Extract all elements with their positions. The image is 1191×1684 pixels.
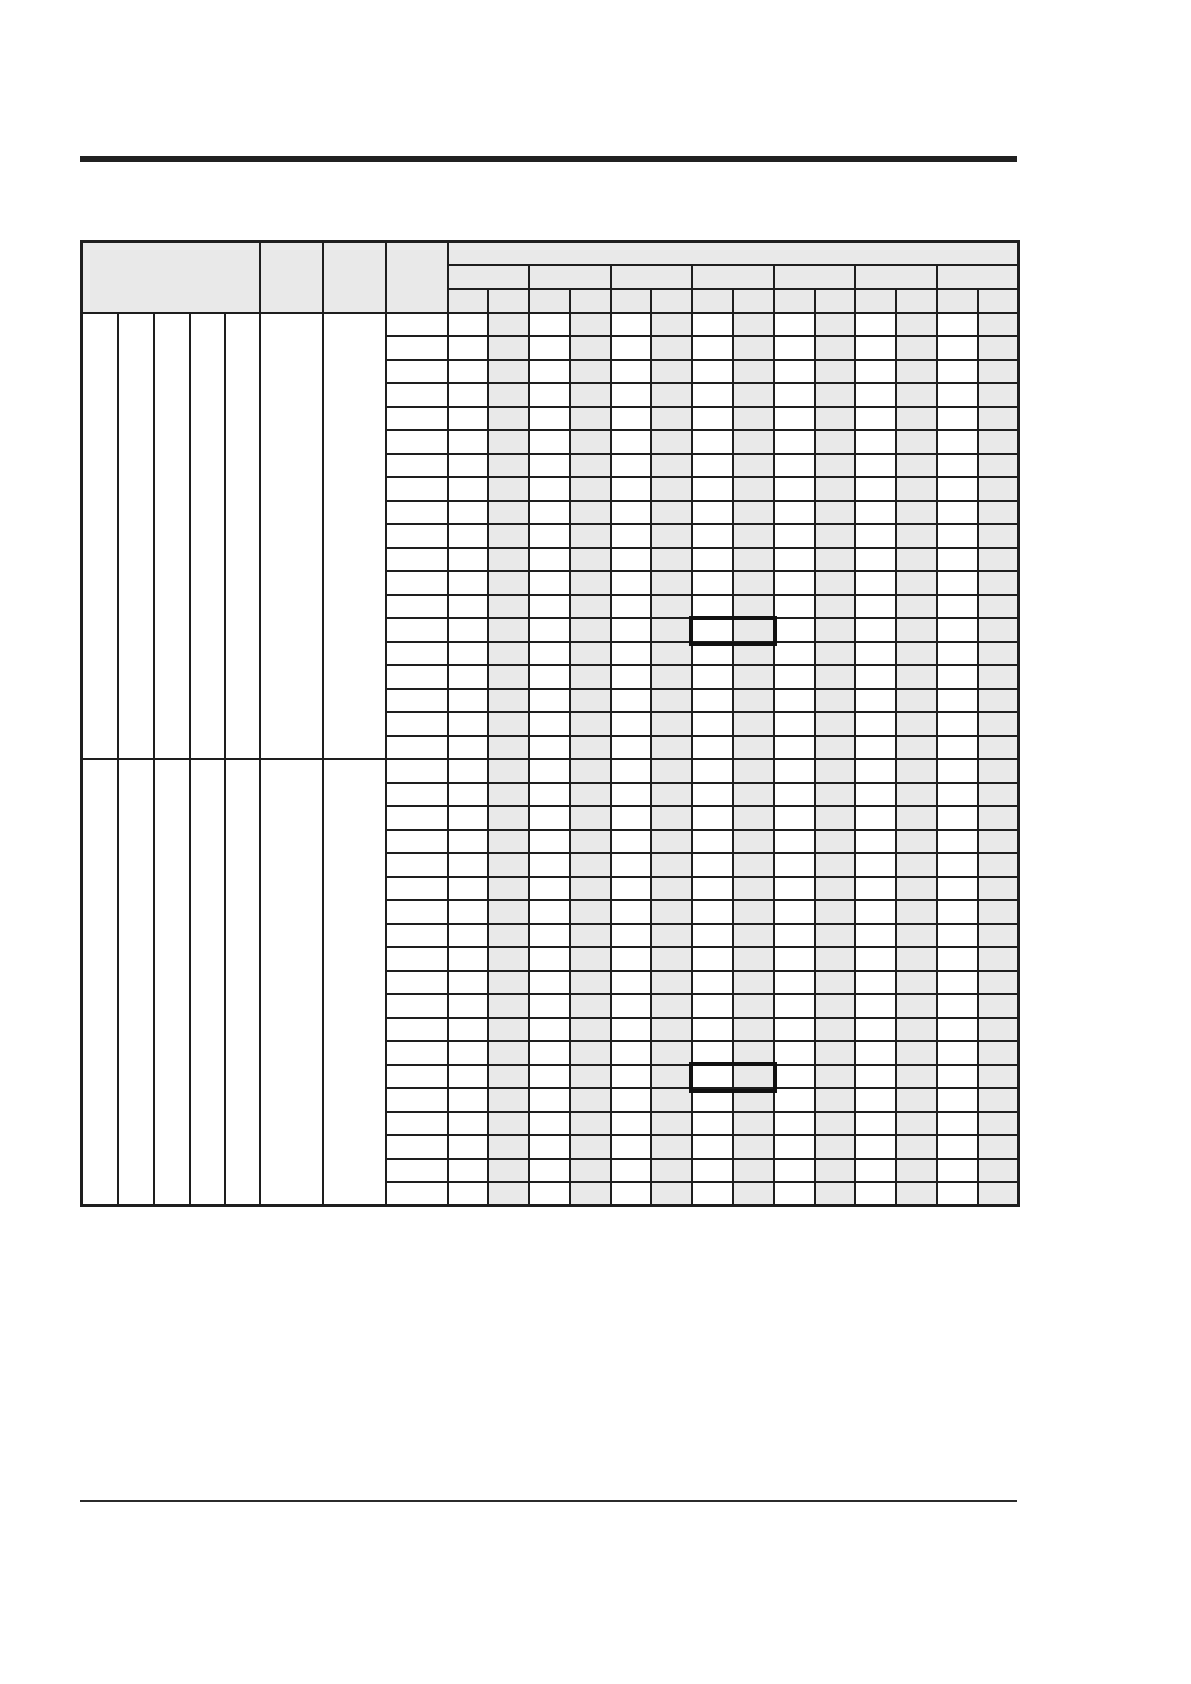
body-cell: [488, 1041, 529, 1065]
body-cell: [855, 900, 896, 924]
body-cell: [651, 1135, 692, 1159]
body-cell: [692, 360, 733, 384]
body-cell: [815, 900, 856, 924]
body-cell: [855, 1065, 896, 1089]
body-cell: [896, 806, 937, 830]
body-cell: [978, 830, 1019, 854]
body-cell: [651, 336, 692, 360]
body-cell: [448, 571, 489, 595]
stub-cell: [386, 924, 448, 948]
body-cell: [855, 689, 896, 713]
body-cell: [611, 571, 652, 595]
body-cell: [733, 1159, 774, 1183]
stub-cell: [386, 477, 448, 501]
body-cell: [896, 783, 937, 807]
stub-cell: [386, 407, 448, 431]
body-cell: [692, 1159, 733, 1183]
body-cell: [529, 1088, 570, 1112]
body-cell: [692, 407, 733, 431]
body-cell: [978, 407, 1019, 431]
body-cell: [815, 759, 856, 783]
body-cell: [978, 524, 1019, 548]
body-cell: [448, 477, 489, 501]
body-cell: [815, 853, 856, 877]
body-cell: [529, 806, 570, 830]
body-cell: [692, 1135, 733, 1159]
body-cell: [488, 1088, 529, 1112]
body-cell: [570, 736, 611, 760]
body-cell: [570, 1112, 611, 1136]
body-cell: [896, 830, 937, 854]
body-cell: [448, 407, 489, 431]
body-cell: [815, 689, 856, 713]
body-cell: [937, 759, 978, 783]
body-cell: [815, 1065, 856, 1089]
body-cell: [488, 1018, 529, 1042]
body-cell: [651, 430, 692, 454]
body-cell: [611, 783, 652, 807]
body-cell: [896, 618, 937, 642]
body-cell: [855, 994, 896, 1018]
header-subcol-14: [978, 289, 1019, 313]
header-subcol-7: [692, 289, 733, 313]
body-cell: [855, 313, 896, 337]
body-cell: [815, 454, 856, 478]
body-cell: [937, 1112, 978, 1136]
body-cell: [774, 1088, 815, 1112]
stub-cell: [386, 313, 448, 337]
body-cell: [692, 947, 733, 971]
body-cell: [733, 689, 774, 713]
body-cell: [488, 548, 529, 572]
body-cell: [774, 759, 815, 783]
body-cell: [611, 1135, 652, 1159]
body-cell: [733, 971, 774, 995]
body-cell: [488, 947, 529, 971]
body-cell: [733, 759, 774, 783]
body-cell: [815, 383, 856, 407]
body-cell: [529, 853, 570, 877]
body-cell: [651, 548, 692, 572]
body-cell: [448, 548, 489, 572]
stub-cell: [386, 783, 448, 807]
body-cell: [896, 1159, 937, 1183]
body-cell: [488, 1065, 529, 1089]
body-cell: [570, 430, 611, 454]
body-cell: [815, 430, 856, 454]
body-cell: [937, 853, 978, 877]
body-cell: [733, 665, 774, 689]
body-cell: [855, 548, 896, 572]
body-cell: [488, 383, 529, 407]
body-cell: [488, 1182, 529, 1206]
header-col-h: [386, 242, 448, 313]
body-cell: [937, 736, 978, 760]
stub-cell: [386, 501, 448, 525]
stub-cell: [386, 548, 448, 572]
body-cell: [855, 783, 896, 807]
body-cell: [611, 806, 652, 830]
body-cell: [733, 736, 774, 760]
body-cell: [774, 1159, 815, 1183]
body-cell: [570, 1135, 611, 1159]
body-cell: [774, 947, 815, 971]
body-cell: [448, 806, 489, 830]
body-cell: [488, 759, 529, 783]
body-cell: [774, 1041, 815, 1065]
body-cell: [488, 336, 529, 360]
body-cell: [937, 689, 978, 713]
body-cell: [896, 595, 937, 619]
body-cell: [488, 618, 529, 642]
header-subcol-4: [570, 289, 611, 313]
stub-cell: [386, 595, 448, 619]
body-cell: [448, 1088, 489, 1112]
body-cell: [733, 336, 774, 360]
body-cell: [937, 642, 978, 666]
body-cell: [774, 806, 815, 830]
body-cell: [529, 1041, 570, 1065]
body-cell: [978, 665, 1019, 689]
body-cell: [774, 1135, 815, 1159]
body-cell: [978, 712, 1019, 736]
body-cell: [611, 971, 652, 995]
body-cell: [855, 1088, 896, 1112]
body-cell: [896, 454, 937, 478]
body-cell: [815, 407, 856, 431]
body-cell: [488, 454, 529, 478]
body-cell: [896, 524, 937, 548]
body-cell: [937, 900, 978, 924]
stub-cell: [386, 383, 448, 407]
body-cell: [488, 313, 529, 337]
body-cell: [529, 994, 570, 1018]
body-cell: [570, 595, 611, 619]
body-cell: [529, 971, 570, 995]
body-cell: [529, 571, 570, 595]
body-cell: [937, 971, 978, 995]
body-cell: [978, 454, 1019, 478]
stub-cell: [386, 360, 448, 384]
body-cell: [488, 524, 529, 548]
body-cell: [488, 689, 529, 713]
body-cell: [978, 1018, 1019, 1042]
body-cell: [692, 477, 733, 501]
body-cell: [529, 313, 570, 337]
stub-cell: [386, 1159, 448, 1183]
body-cell: [488, 971, 529, 995]
body-cell: [774, 571, 815, 595]
body-cell: [611, 665, 652, 689]
body-cell: [733, 1112, 774, 1136]
body-cell: [978, 1182, 1019, 1206]
body-cell: [855, 642, 896, 666]
body-cell: [855, 595, 896, 619]
body-cell: [733, 618, 774, 642]
body-cell: [651, 1159, 692, 1183]
body-cell: [488, 994, 529, 1018]
body-cell: [651, 1041, 692, 1065]
body-cell: [529, 407, 570, 431]
body-cell: [692, 1112, 733, 1136]
body-cell: [611, 1018, 652, 1042]
body-cell: [448, 947, 489, 971]
body-cell: [978, 642, 1019, 666]
header-group-3: [611, 265, 693, 289]
body-cell: [651, 759, 692, 783]
body-cell: [570, 877, 611, 901]
body-cell: [937, 665, 978, 689]
tall-cell-s2-n2: [118, 759, 154, 1206]
body-cell: [815, 360, 856, 384]
body-cell: [611, 430, 652, 454]
body-cell: [611, 1088, 652, 1112]
body-cell: [855, 924, 896, 948]
body-cell: [529, 360, 570, 384]
body-cell: [692, 595, 733, 619]
body-cell: [570, 360, 611, 384]
body-cell: [611, 383, 652, 407]
header-subcol-8: [733, 289, 774, 313]
body-cell: [937, 877, 978, 901]
body-cell: [937, 477, 978, 501]
body-cell: [570, 689, 611, 713]
body-cell: [774, 1112, 815, 1136]
body-cell: [611, 1041, 652, 1065]
body-cell: [855, 1018, 896, 1042]
body-cell: [448, 642, 489, 666]
body-cell: [896, 853, 937, 877]
body-cell: [651, 689, 692, 713]
body-cell: [570, 642, 611, 666]
header-subcol-3: [529, 289, 570, 313]
body-cell: [651, 900, 692, 924]
body-cell: [815, 712, 856, 736]
body-cell: [651, 665, 692, 689]
body-cell: [529, 383, 570, 407]
body-cell: [529, 454, 570, 478]
body-cell: [815, 736, 856, 760]
stub-cell: [386, 1018, 448, 1042]
body-cell: [529, 759, 570, 783]
body-cell: [896, 1041, 937, 1065]
body-cell: [448, 712, 489, 736]
body-cell: [692, 454, 733, 478]
body-cell: [611, 689, 652, 713]
header-col-g: [323, 242, 386, 313]
header-group-2: [529, 265, 611, 289]
body-cell: [774, 336, 815, 360]
body-cell: [937, 1018, 978, 1042]
body-cell: [774, 783, 815, 807]
header-subcol-9: [774, 289, 815, 313]
body-cell: [692, 689, 733, 713]
stub-cell: [386, 759, 448, 783]
body-cell: [733, 1088, 774, 1112]
body-cell: [692, 877, 733, 901]
body-cell: [529, 1065, 570, 1089]
body-cell: [651, 877, 692, 901]
body-cell: [529, 1135, 570, 1159]
body-cell: [529, 924, 570, 948]
body-cell: [692, 783, 733, 807]
body-cell: [896, 548, 937, 572]
stub-cell: [386, 571, 448, 595]
body-cell: [529, 712, 570, 736]
body-cell: [570, 618, 611, 642]
body-cell: [774, 971, 815, 995]
body-cell: [733, 360, 774, 384]
body-cell: [774, 1065, 815, 1089]
body-cell: [855, 477, 896, 501]
body-cell: [488, 642, 529, 666]
body-cell: [651, 830, 692, 854]
stub-cell: [386, 900, 448, 924]
body-cell: [733, 383, 774, 407]
body-cell: [815, 806, 856, 830]
stub-cell: [386, 1065, 448, 1089]
body-cell: [896, 1065, 937, 1089]
body-cell: [978, 877, 1019, 901]
tall-cell-s1-m2: [323, 313, 386, 760]
stub-cell: [386, 736, 448, 760]
stub-cell: [386, 618, 448, 642]
body-cell: [937, 1159, 978, 1183]
body-cell: [978, 383, 1019, 407]
body-cell: [815, 1041, 856, 1065]
body-cell: [651, 642, 692, 666]
body-cell: [692, 900, 733, 924]
body-cell: [448, 360, 489, 384]
body-cell: [774, 383, 815, 407]
body-cell: [570, 454, 611, 478]
body-cell: [448, 595, 489, 619]
body-cell: [692, 383, 733, 407]
stub-cell: [386, 1112, 448, 1136]
body-cell: [896, 689, 937, 713]
body-cell: [529, 900, 570, 924]
body-cell: [448, 1041, 489, 1065]
body-cell: [733, 1065, 774, 1089]
body-cell: [978, 759, 1019, 783]
body-cell: [855, 1041, 896, 1065]
body-cell: [733, 477, 774, 501]
body-cell: [896, 1088, 937, 1112]
tall-cell-s1-m1: [260, 313, 323, 760]
body-cell: [937, 1041, 978, 1065]
body-cell: [978, 1135, 1019, 1159]
body-cell: [448, 336, 489, 360]
body-cell: [815, 548, 856, 572]
body-cell: [855, 806, 896, 830]
body-cell: [774, 595, 815, 619]
body-cell: [529, 1182, 570, 1206]
body-cell: [774, 665, 815, 689]
body-cell: [692, 1018, 733, 1042]
body-cell: [978, 595, 1019, 619]
stub-cell: [386, 1182, 448, 1206]
body-cell: [815, 1088, 856, 1112]
body-cell: [448, 430, 489, 454]
body-cell: [651, 1088, 692, 1112]
body-cell: [529, 642, 570, 666]
body-cell: [978, 924, 1019, 948]
header-subcol-10: [815, 289, 856, 313]
body-cell: [978, 477, 1019, 501]
body-cell: [651, 971, 692, 995]
body-cell: [855, 947, 896, 971]
header-group-5: [774, 265, 856, 289]
body-cell: [774, 430, 815, 454]
body-cell: [570, 524, 611, 548]
body-cell: [651, 383, 692, 407]
body-cell: [855, 736, 896, 760]
body-cell: [692, 313, 733, 337]
body-cell: [651, 501, 692, 525]
stub-cell: [386, 806, 448, 830]
body-cell: [488, 595, 529, 619]
body-cell: [611, 477, 652, 501]
body-cell: [733, 1182, 774, 1206]
body-cell: [855, 712, 896, 736]
body-cell: [488, 1135, 529, 1159]
body-cell: [855, 759, 896, 783]
body-cell: [529, 477, 570, 501]
body-cell: [529, 595, 570, 619]
body-cell: [529, 618, 570, 642]
body-cell: [448, 759, 489, 783]
body-cell: [448, 830, 489, 854]
body-cell: [774, 830, 815, 854]
body-cell: [651, 712, 692, 736]
body-cell: [448, 853, 489, 877]
body-cell: [937, 1182, 978, 1206]
body-cell: [488, 830, 529, 854]
body-cell: [611, 853, 652, 877]
header-data-span: [448, 242, 1019, 266]
body-cell: [978, 336, 1019, 360]
tall-cell-s2-n5: [225, 759, 260, 1206]
body-cell: [937, 947, 978, 971]
body-cell: [611, 924, 652, 948]
body-cell: [733, 454, 774, 478]
body-cell: [937, 712, 978, 736]
body-cell: [896, 1018, 937, 1042]
stub-cell: [386, 994, 448, 1018]
stub-cell: [386, 642, 448, 666]
body-cell: [896, 947, 937, 971]
body-cell: [978, 994, 1019, 1018]
body-cell: [529, 736, 570, 760]
body-cell: [896, 1112, 937, 1136]
body-cell: [611, 548, 652, 572]
body-cell: [815, 642, 856, 666]
body-cell: [855, 853, 896, 877]
body-cell: [570, 853, 611, 877]
body-cell: [651, 947, 692, 971]
body-cell: [815, 524, 856, 548]
body-cell: [488, 924, 529, 948]
body-cell: [937, 924, 978, 948]
body-cell: [611, 1159, 652, 1183]
header-group-1: [448, 265, 530, 289]
body-cell: [774, 524, 815, 548]
body-cell: [448, 1018, 489, 1042]
body-cell: [570, 924, 611, 948]
body-cell: [774, 877, 815, 901]
stub-cell: [386, 877, 448, 901]
body-cell: [815, 618, 856, 642]
